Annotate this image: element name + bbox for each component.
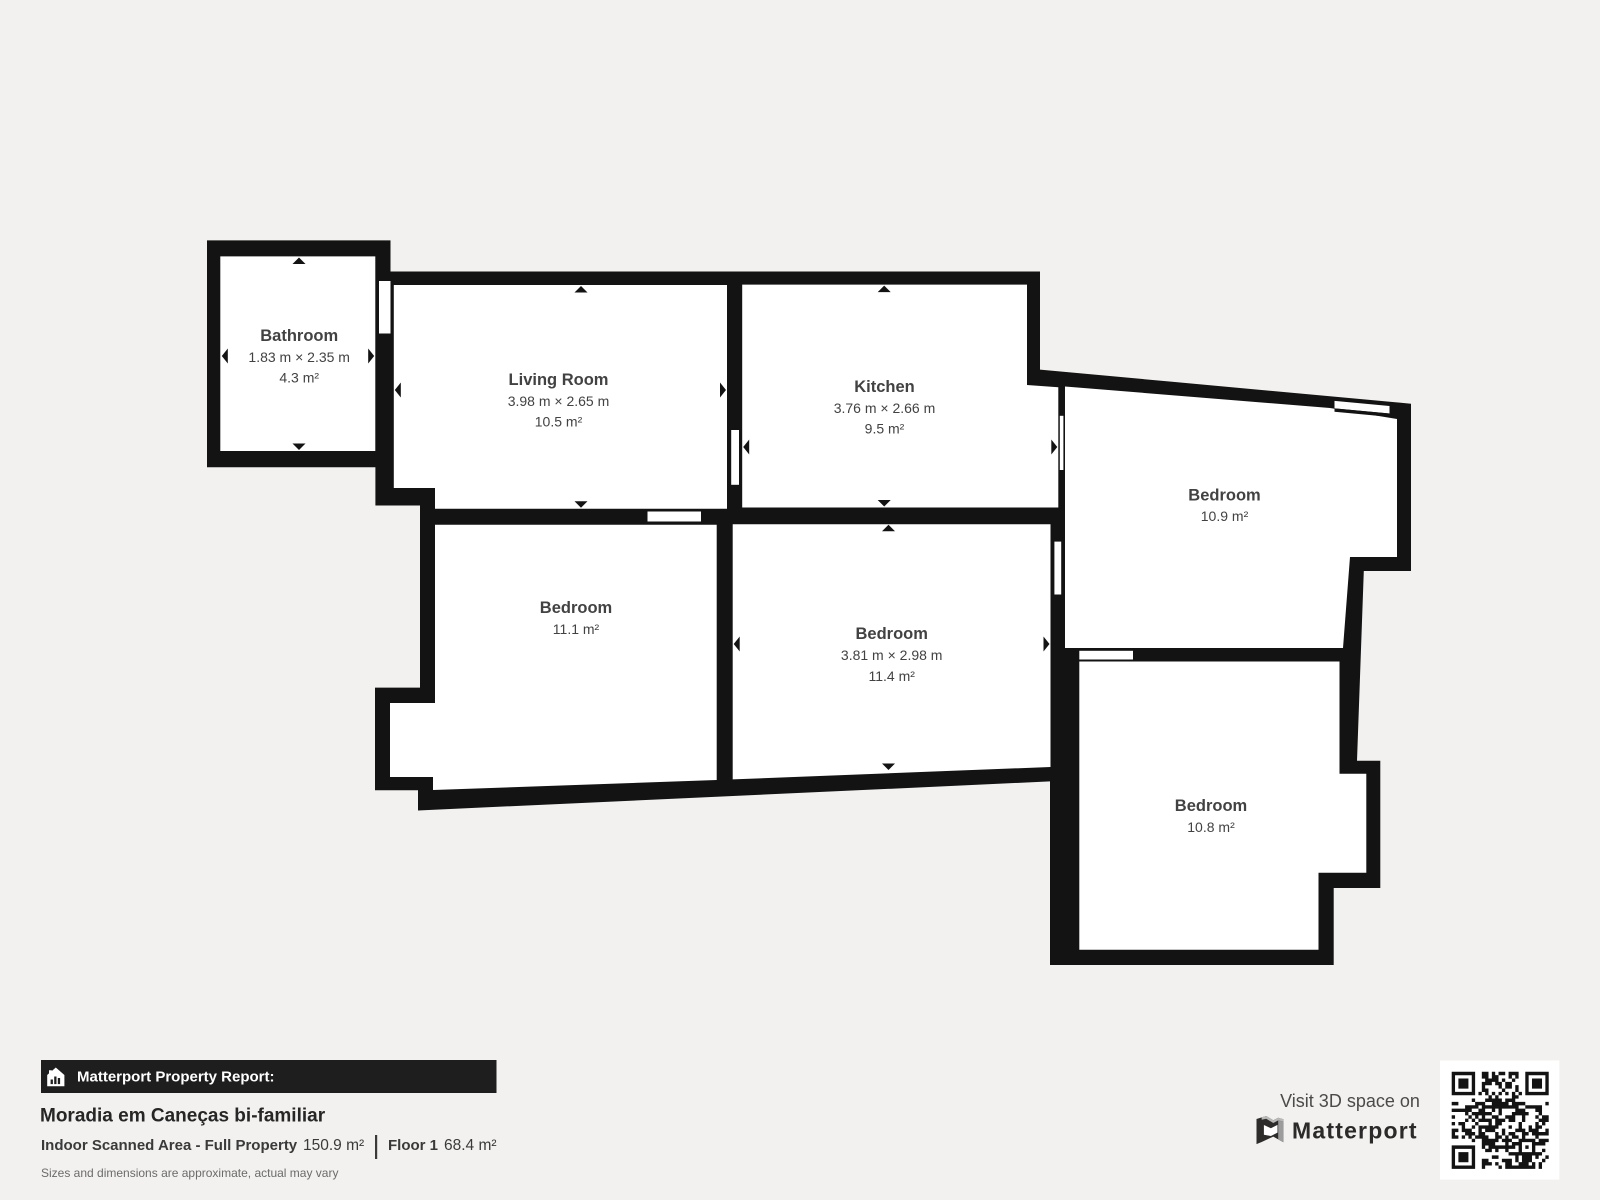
svg-text:Kitchen: Kitchen	[854, 378, 915, 396]
svg-text:Bedroom: Bedroom	[1175, 797, 1247, 815]
svg-text:10.5 m²: 10.5 m²	[535, 414, 583, 430]
svg-text:Indoor Scanned Area - Full Pro: Indoor Scanned Area - Full Property	[41, 1137, 298, 1154]
svg-text:Matterport Property Report:: Matterport Property Report:	[77, 1069, 275, 1086]
svg-text:Floor 1: Floor 1	[388, 1137, 438, 1154]
svg-text:Living Room: Living Room	[509, 371, 609, 389]
svg-text:3.98 m × 2.65 m: 3.98 m × 2.65 m	[508, 393, 610, 409]
svg-text:150.9 m²: 150.9 m²	[303, 1137, 364, 1154]
svg-text:Bedroom: Bedroom	[1188, 486, 1260, 504]
svg-text:Sizes and dimensions are appro: Sizes and dimensions are approximate, ac…	[41, 1166, 338, 1180]
svg-text:10.8 m²: 10.8 m²	[1187, 819, 1235, 835]
svg-text:3.76 m × 2.66 m: 3.76 m × 2.66 m	[834, 400, 936, 416]
svg-text:Moradia em Caneças bi-familiar: Moradia em Caneças bi-familiar	[40, 1106, 326, 1127]
svg-text:4.3 m²: 4.3 m²	[279, 370, 319, 386]
svg-text:9.5 m²: 9.5 m²	[865, 421, 905, 437]
svg-text:11.1 m²: 11.1 m²	[553, 621, 600, 637]
svg-text:Visit 3D space on: Visit 3D space on	[1280, 1091, 1420, 1111]
svg-text:68.4 m²: 68.4 m²	[444, 1137, 497, 1154]
svg-text:3.81 m × 2.98 m: 3.81 m × 2.98 m	[841, 647, 943, 663]
svg-text:11.4 m²: 11.4 m²	[868, 668, 915, 684]
svg-text:1.83 m × 2.35 m: 1.83 m × 2.35 m	[248, 349, 350, 365]
svg-text:Matterport: Matterport	[1292, 1117, 1418, 1143]
svg-text:Bathroom: Bathroom	[260, 327, 338, 345]
svg-text:Bedroom: Bedroom	[855, 625, 927, 643]
svg-text:Bedroom: Bedroom	[540, 599, 612, 617]
svg-text:10.9 m²: 10.9 m²	[1201, 508, 1249, 524]
